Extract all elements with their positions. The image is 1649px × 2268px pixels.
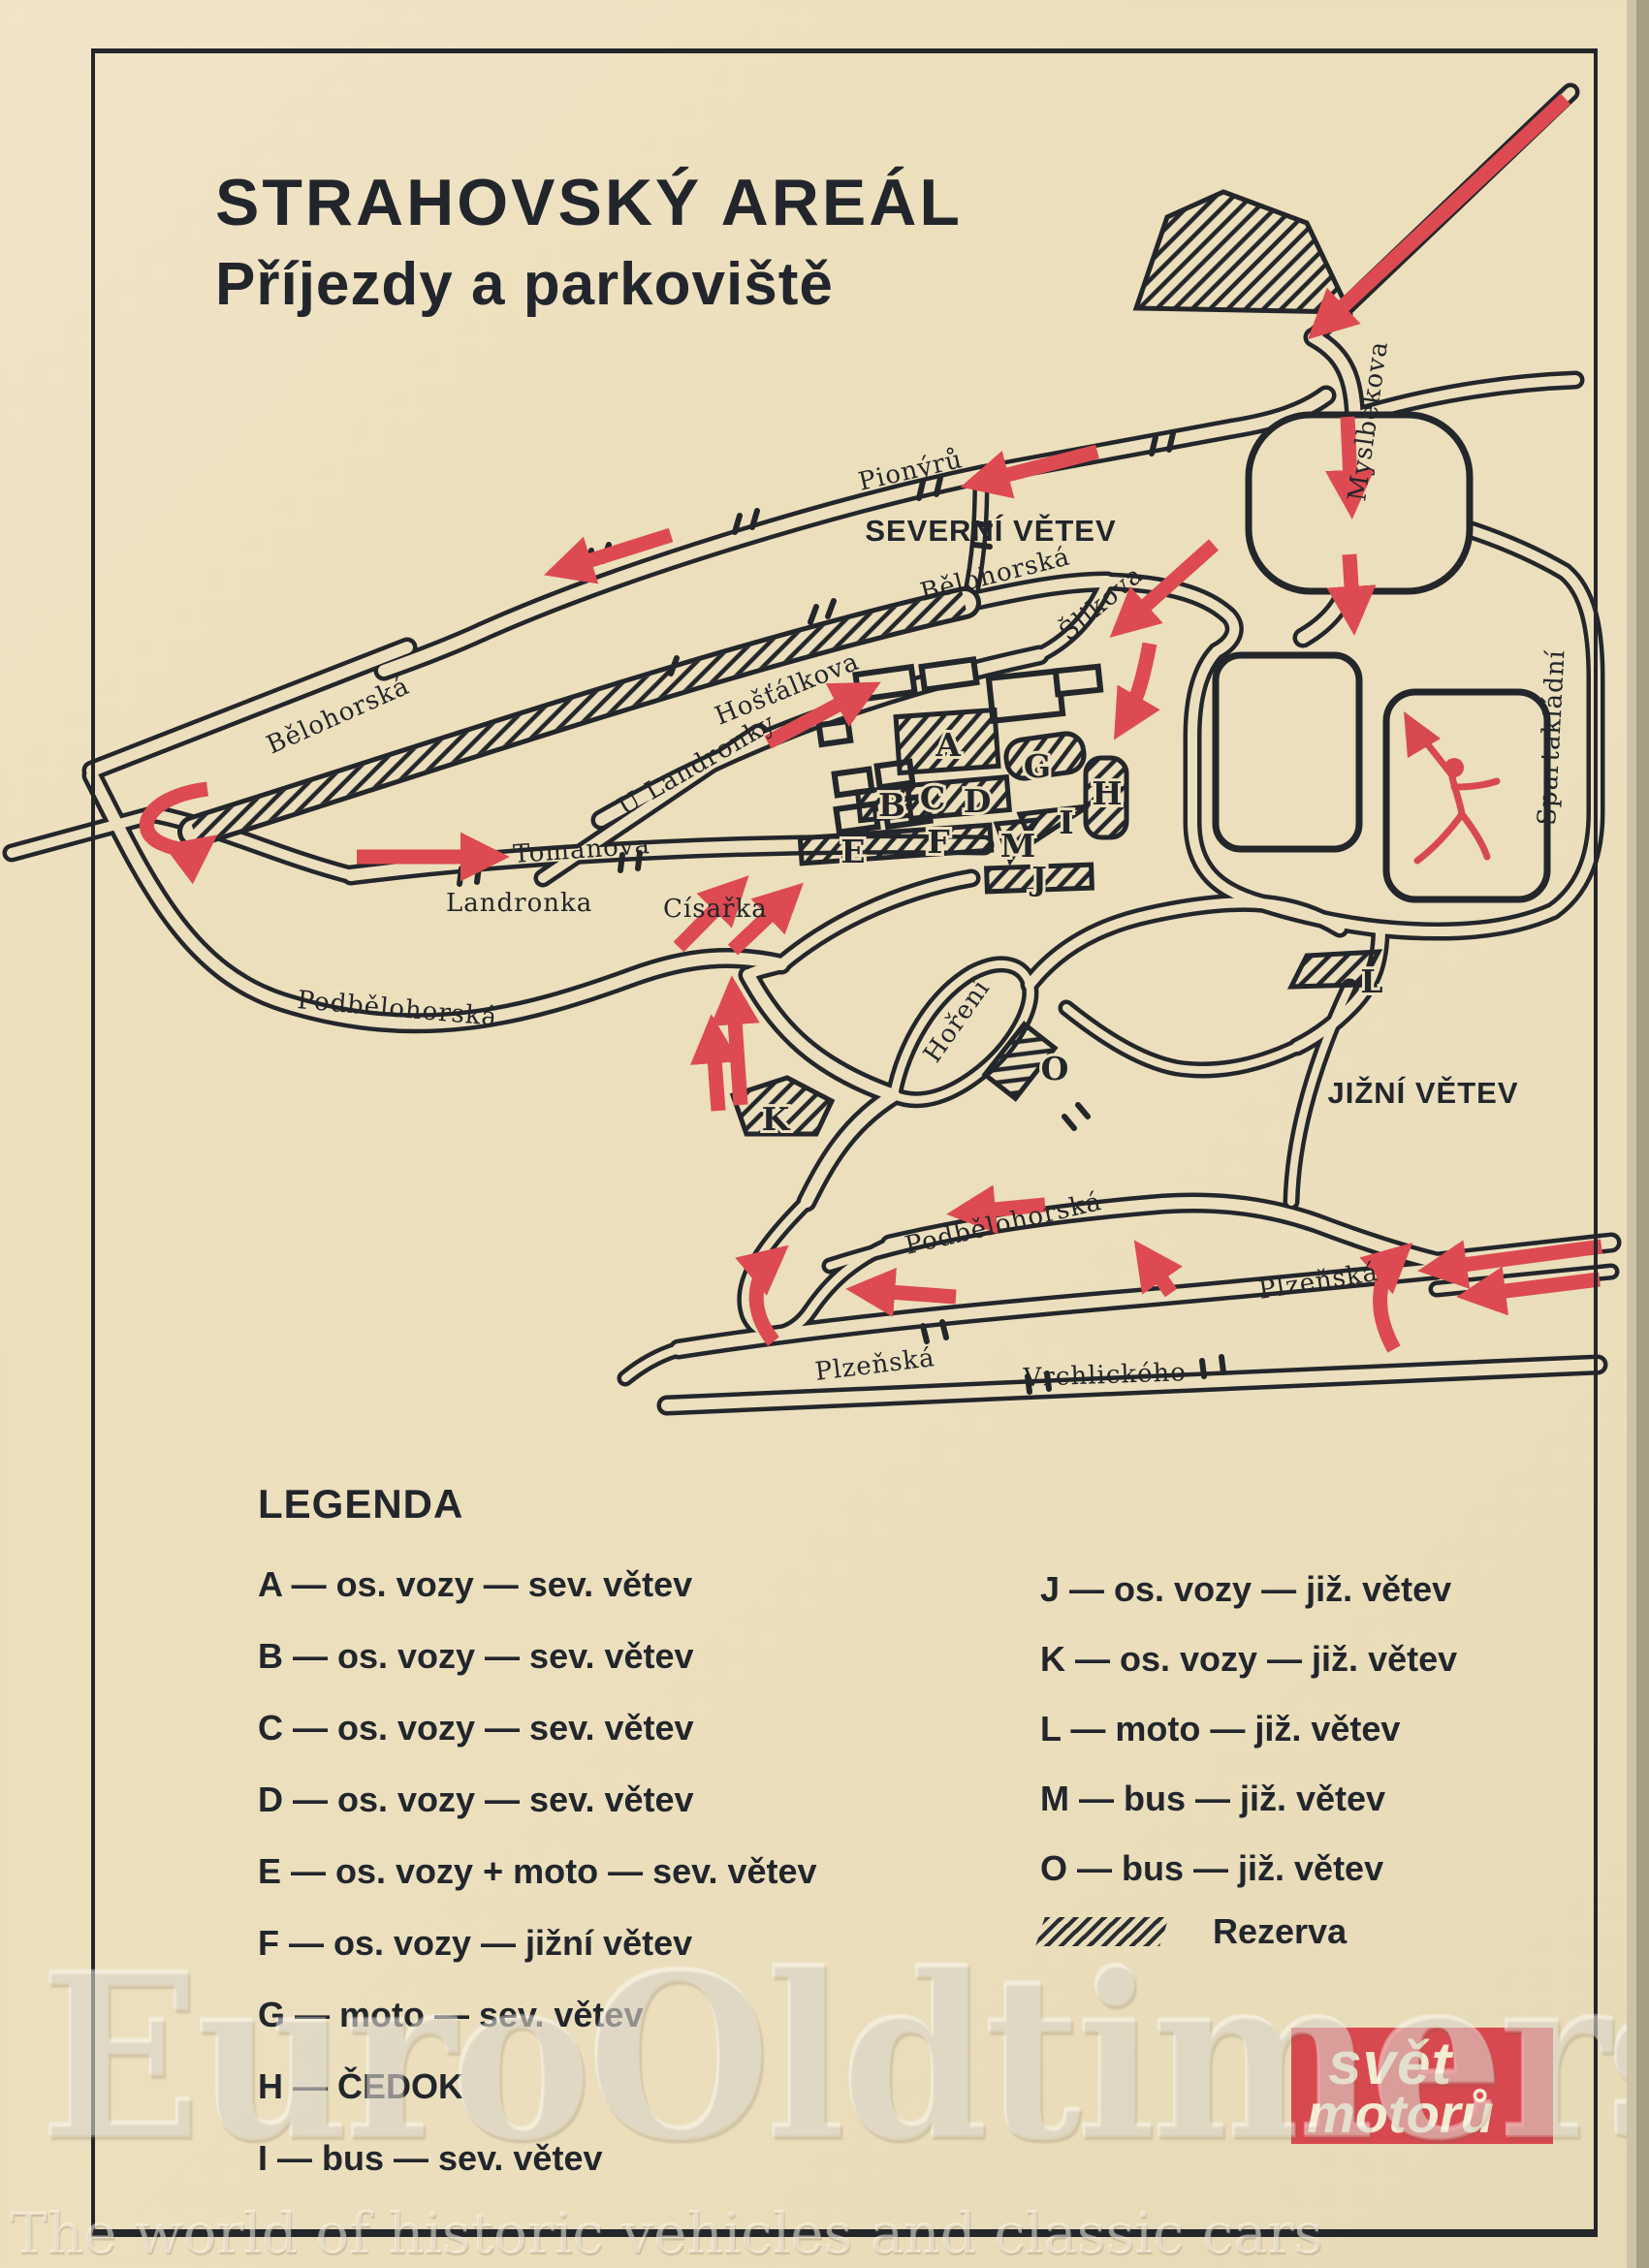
scan-edge-strip [1627,0,1636,2268]
scan-edge-strip [1636,0,1649,2268]
watermark-subtitle: The world of historic vehicles and class… [10,2200,1322,2266]
watermark-text: EuroOldtimers.com [40,1924,1608,2191]
magazine-page: ABCDEFGHIJKLMO PionýrůBělohorskáŠlikovaM… [0,0,1649,2268]
page-border-frame [91,48,1598,2237]
